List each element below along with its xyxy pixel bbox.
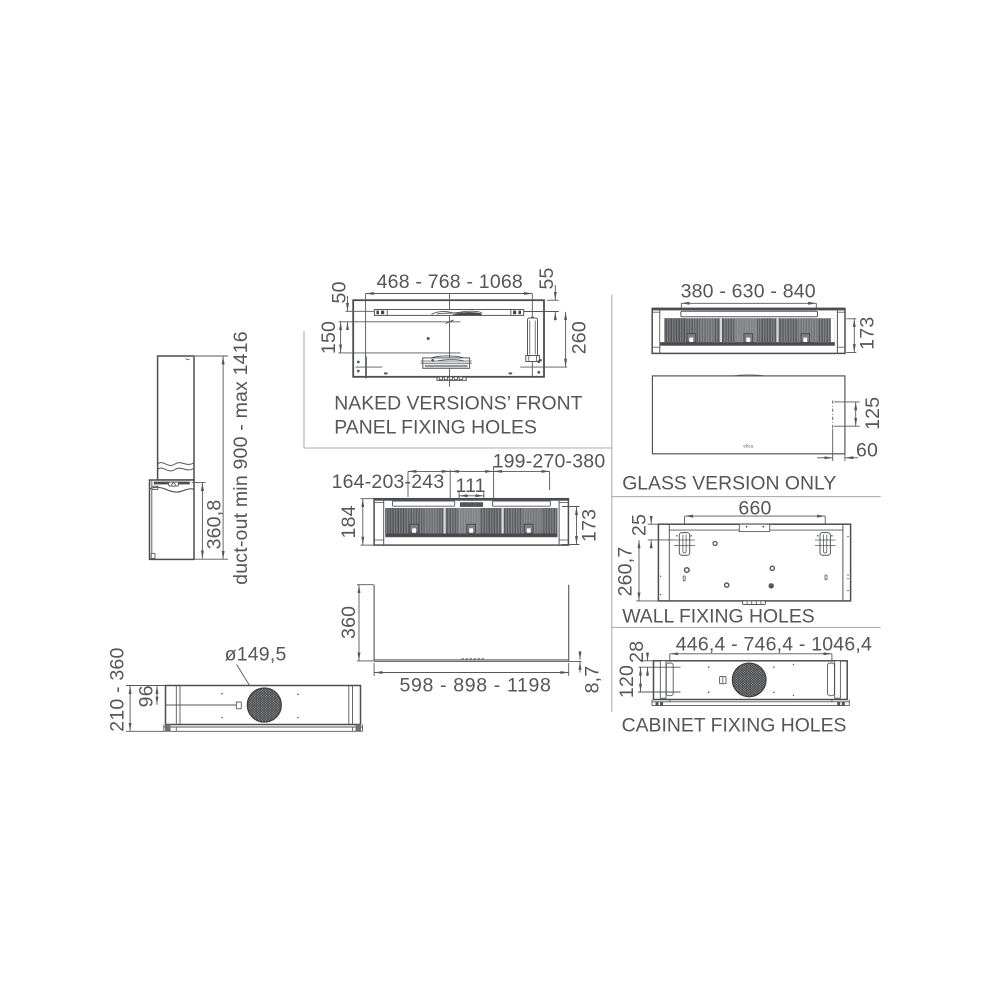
- svg-text:96: 96: [136, 685, 158, 707]
- svg-text:125: 125: [862, 397, 884, 430]
- svg-text:199-270-380: 199-270-380: [493, 451, 606, 473]
- svg-text:446,4 - 746,4 - 1046,4: 446,4 - 746,4 - 1046,4: [676, 633, 872, 655]
- svg-text:120: 120: [616, 665, 638, 698]
- svg-text:360,8: 360,8: [204, 500, 226, 550]
- svg-text:210 - 360: 210 - 360: [106, 647, 128, 731]
- svg-text:60: 60: [856, 439, 878, 461]
- svg-text:NAKED VERSIONS’ FRONT: NAKED VERSIONS’ FRONT: [334, 392, 582, 414]
- svg-text:184: 184: [338, 505, 360, 538]
- svg-text:598 - 898 - 1198: 598 - 898 - 1198: [399, 675, 551, 697]
- svg-text:WALL FIXING HOLES: WALL FIXING HOLES: [622, 605, 815, 627]
- svg-text:260: 260: [568, 321, 590, 354]
- svg-text:CABINET FIXING HOLES: CABINET FIXING HOLES: [622, 715, 847, 737]
- svg-text:468 - 768 - 1068: 468 - 768 - 1068: [377, 271, 523, 293]
- svg-text:260,7: 260,7: [615, 547, 637, 597]
- svg-text:GLASS VERSION ONLY: GLASS VERSION ONLY: [622, 473, 836, 495]
- svg-text:164-203-243: 164-203-243: [332, 471, 445, 493]
- svg-text:25: 25: [628, 514, 650, 536]
- svg-text:360: 360: [338, 606, 360, 639]
- svg-text:28: 28: [626, 641, 648, 663]
- svg-text:ø149,5: ø149,5: [225, 644, 287, 666]
- svg-text:150: 150: [318, 321, 340, 354]
- svg-text:55: 55: [536, 267, 558, 289]
- svg-text:173: 173: [856, 317, 878, 350]
- svg-text:PANEL FIXING HOLES: PANEL FIXING HOLES: [334, 416, 537, 438]
- svg-text:173: 173: [578, 509, 600, 542]
- svg-text:380 - 630 - 840: 380 - 630 - 840: [681, 281, 816, 303]
- svg-text:duct-out min 900 - max 1416: duct-out min 900 - max 1416: [230, 331, 252, 585]
- svg-text:111: 111: [455, 475, 485, 497]
- svg-text:8,7: 8,7: [582, 666, 604, 694]
- svg-text:elica: elica: [743, 443, 753, 448]
